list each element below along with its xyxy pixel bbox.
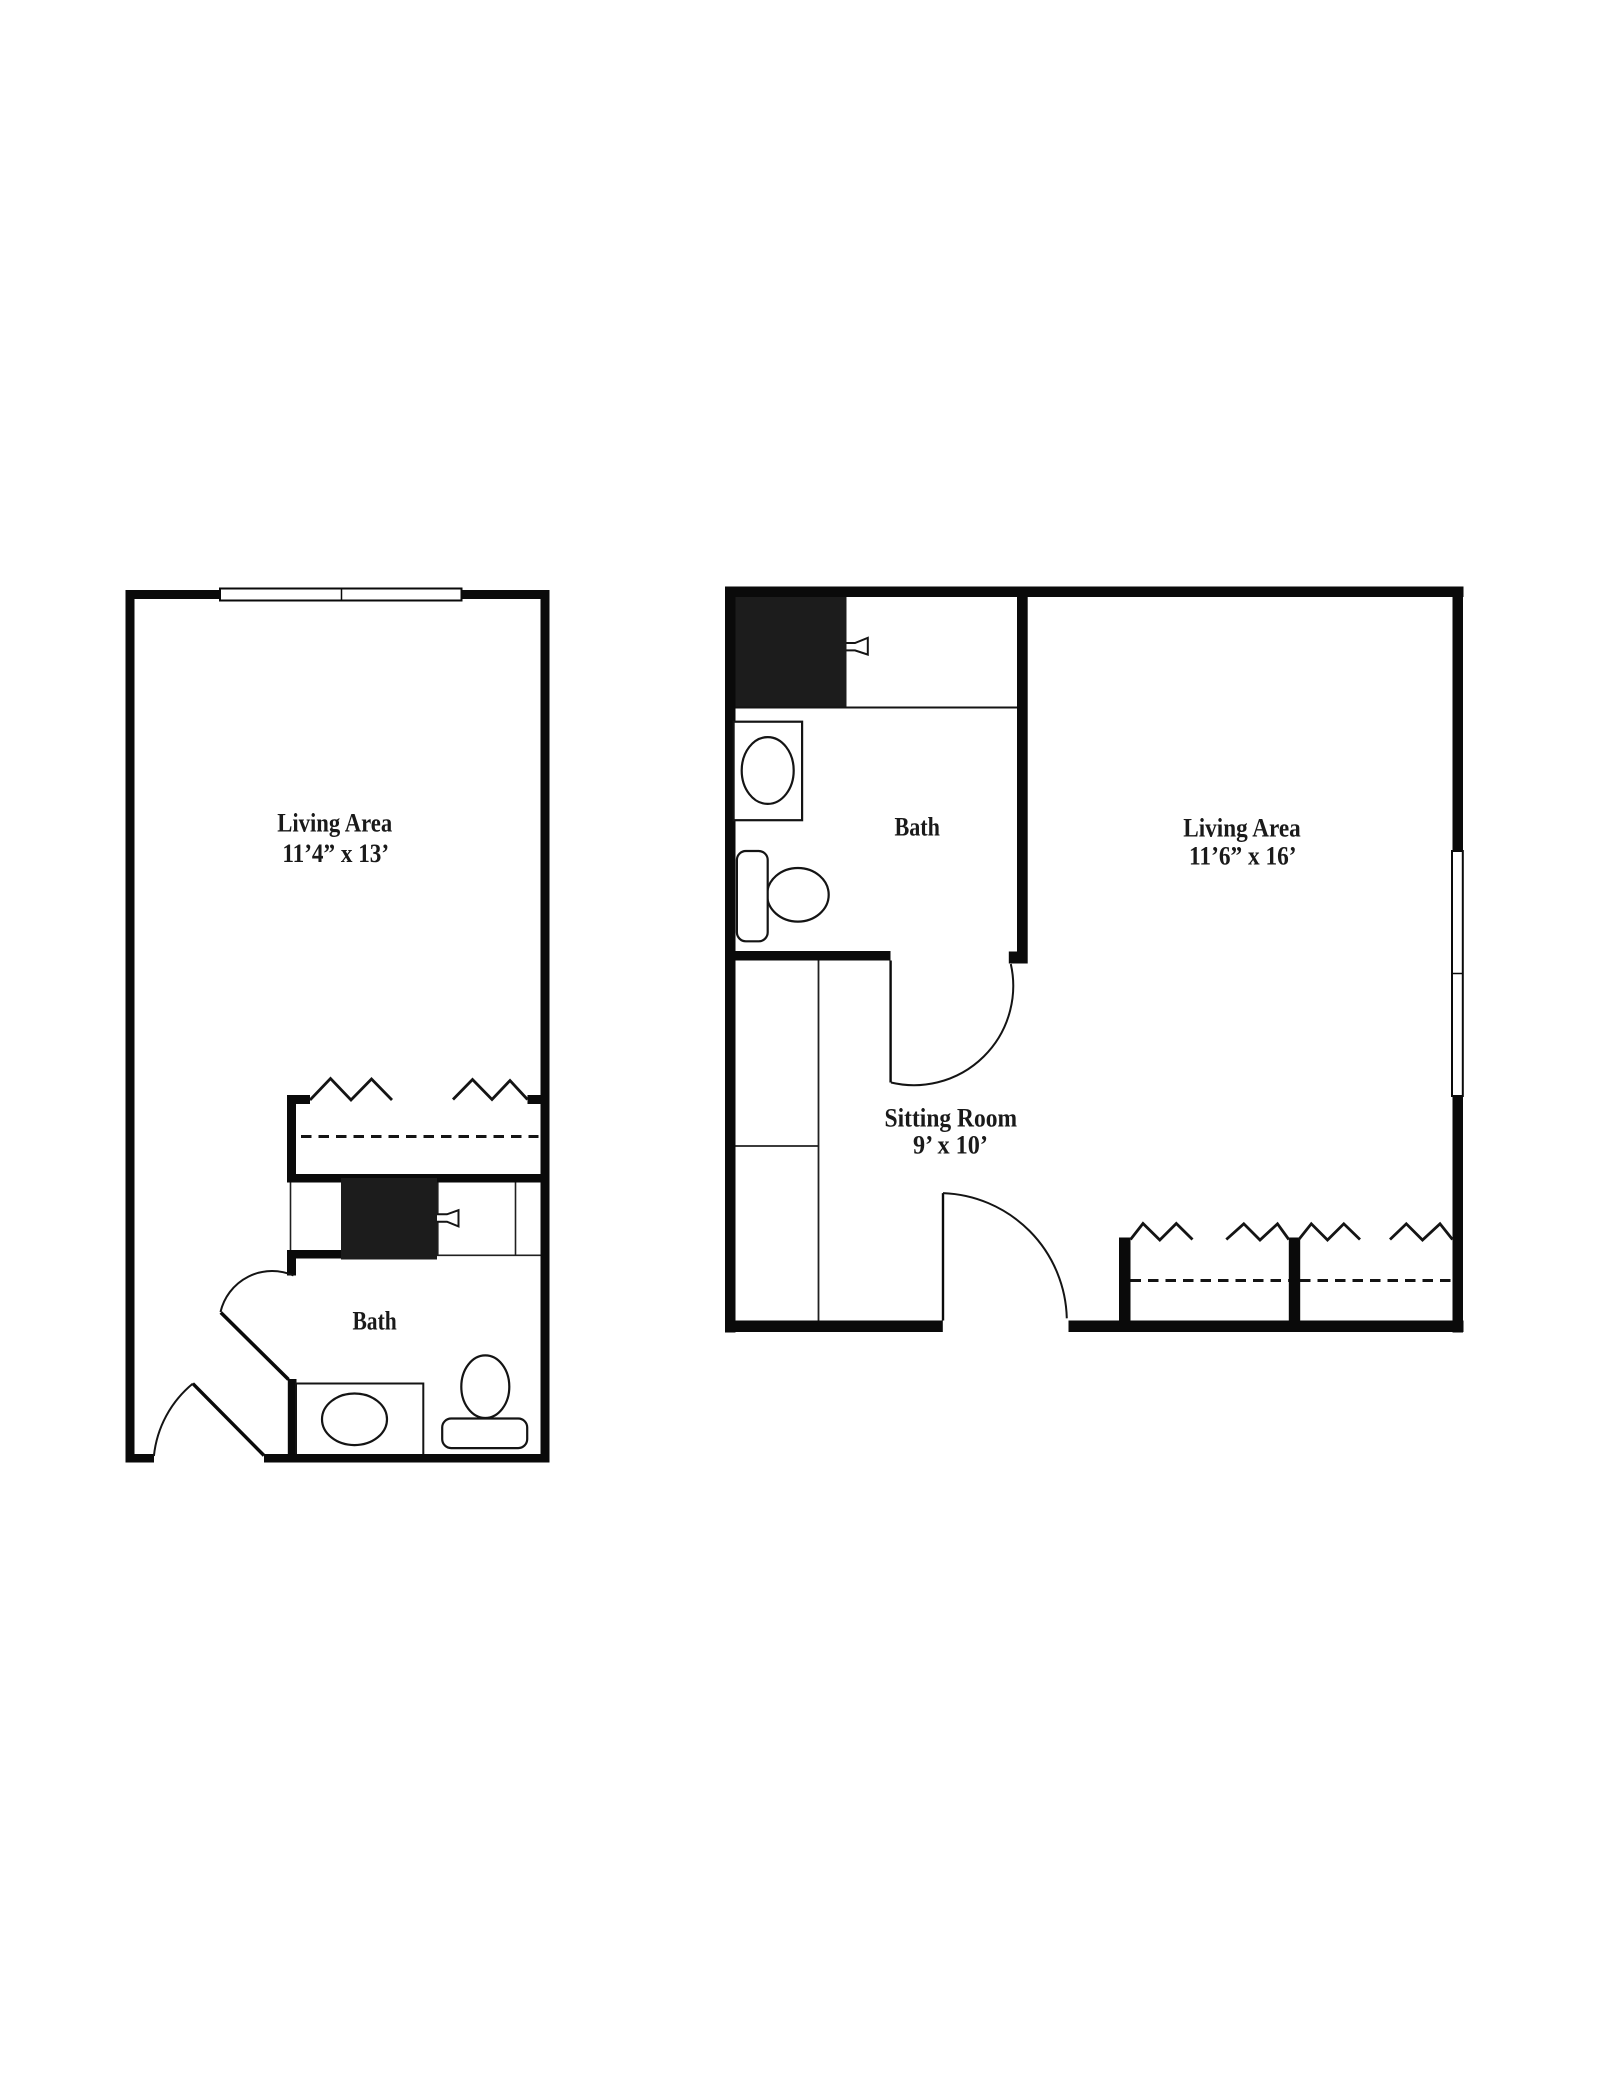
svg-text:Bath: Bath bbox=[894, 813, 940, 842]
svg-text:Sitting Room: Sitting Room bbox=[885, 1104, 1018, 1133]
svg-text:Living Area: Living Area bbox=[277, 809, 392, 838]
svg-text:11’6” x 16’: 11’6” x 16’ bbox=[1189, 841, 1297, 870]
svg-text:9’ x 10’: 9’ x 10’ bbox=[913, 1131, 988, 1160]
svg-text:Bath: Bath bbox=[352, 1307, 397, 1336]
svg-text:Living Area: Living Area bbox=[1183, 814, 1301, 843]
svg-text:11’4” x 13’: 11’4” x 13’ bbox=[282, 839, 389, 868]
